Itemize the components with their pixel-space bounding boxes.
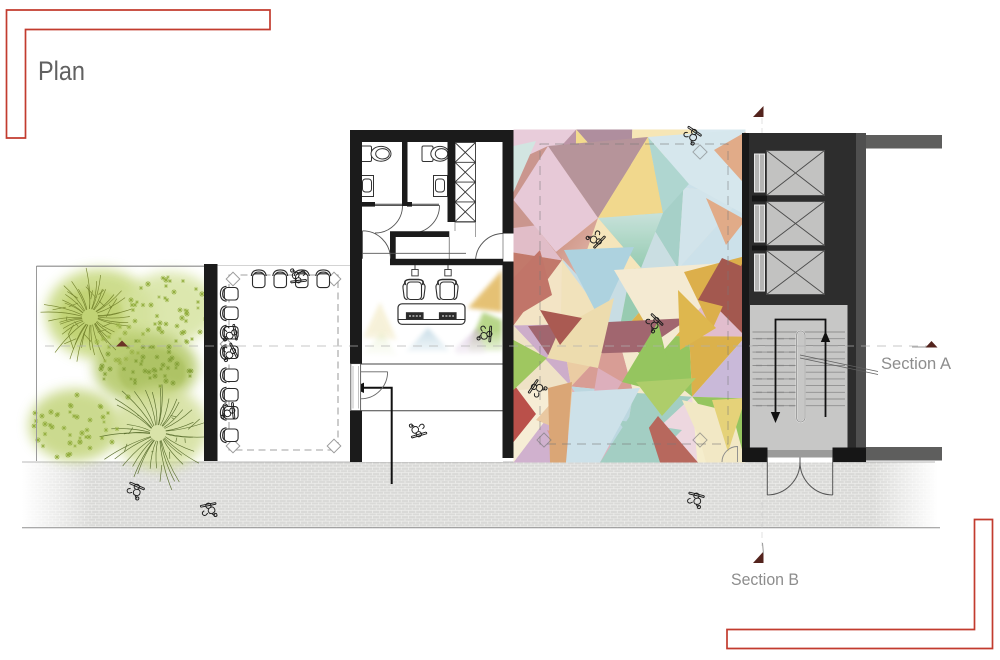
svg-text:Section B: Section B [731, 571, 799, 589]
svg-text:Section A: Section A [881, 355, 951, 373]
svg-text:Plan: Plan [38, 56, 85, 86]
